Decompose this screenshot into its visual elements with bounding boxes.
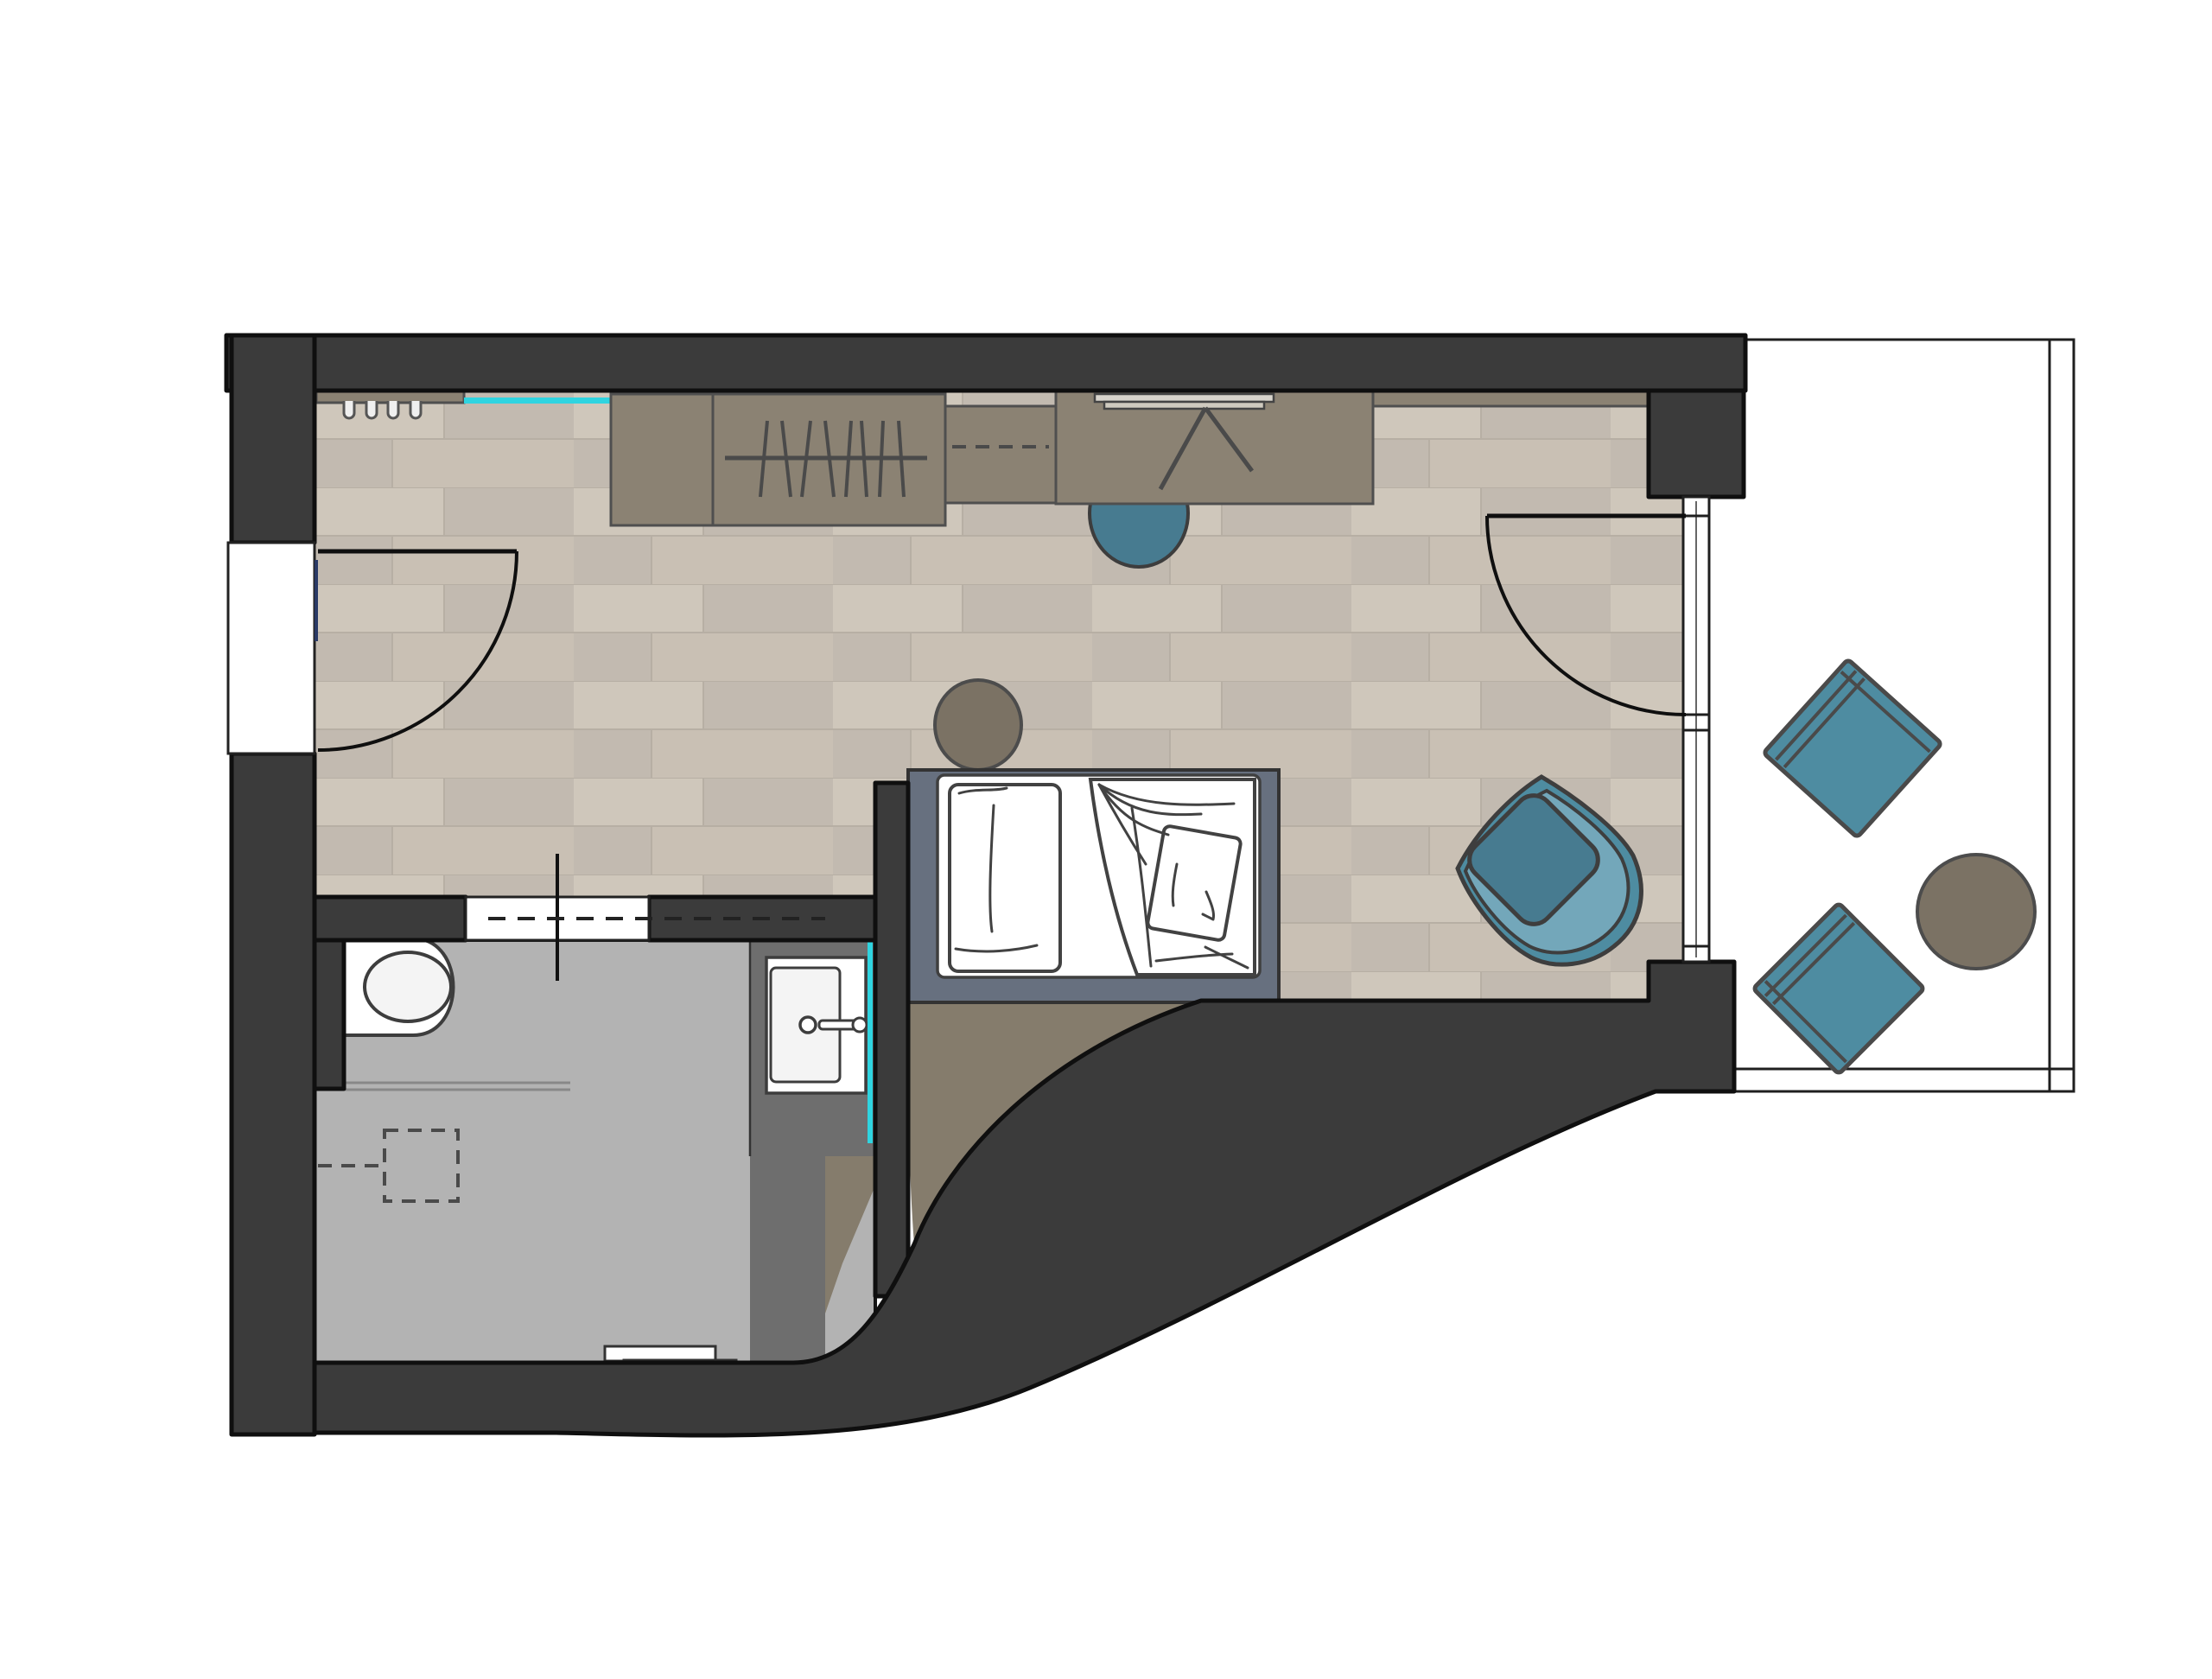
tv-panel: [1104, 402, 1264, 409]
deck-chair-top: [1764, 659, 1942, 837]
bed-head-wall: [875, 783, 908, 1296]
floor-plan-canvas: [0, 0, 2212, 1679]
floor-plan: [0, 0, 2212, 1679]
balcony-wall-right: [2050, 340, 2074, 1091]
luggage-shelf-accent: [464, 397, 611, 404]
balcony-table: [1917, 855, 2035, 969]
balcony-furniture: [1753, 659, 2035, 1074]
side-stool: [935, 680, 1021, 770]
vanity-counter-lower: [750, 1156, 825, 1363]
wardrobe-cabinet: [611, 394, 713, 525]
open-shelf: [945, 406, 1056, 503]
tv-ledge: [1095, 394, 1274, 402]
washbasin: [766, 957, 867, 1093]
bed: [908, 770, 1279, 1002]
faucet-knob: [853, 1018, 867, 1032]
wall-top: [226, 335, 1745, 391]
window-ledge: [1373, 391, 1650, 406]
wall-pillar-balcony: [1649, 391, 1744, 497]
bathroom: [315, 935, 875, 1375]
faucet-drain: [800, 1017, 816, 1033]
wall-left-upper: [232, 335, 315, 543]
balcony-wall-bottom: [1734, 1069, 2074, 1091]
entry-door-opening: [228, 543, 315, 754]
bath-wall-left-seg: [315, 897, 466, 940]
toilet-wall-pillar: [315, 935, 344, 1089]
deck-chair-bottom: [1753, 903, 1924, 1074]
wall-left-lower: [232, 754, 315, 1434]
toilet: [344, 938, 454, 1035]
glass-screen: [868, 942, 873, 1143]
